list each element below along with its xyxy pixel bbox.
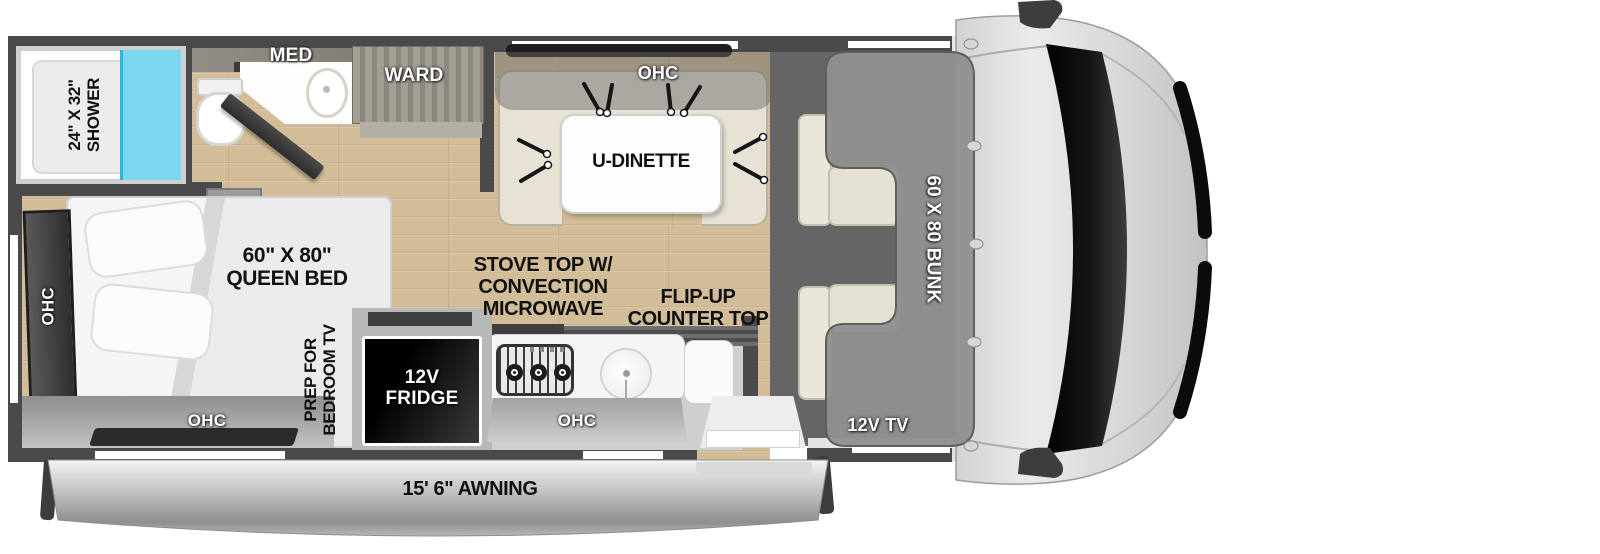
med-label: MED bbox=[262, 46, 320, 67]
bed-pillow bbox=[89, 282, 215, 362]
bath-sink-bowl bbox=[306, 68, 348, 118]
wall-bathroom-bottom bbox=[8, 182, 222, 196]
bed-text: QUEEN BED bbox=[147, 267, 427, 290]
cab-tv-label: 12V TV bbox=[838, 416, 918, 436]
kitchen-faucet-handle bbox=[625, 380, 627, 402]
stove-line3: MICROWAVE bbox=[451, 298, 635, 320]
windshield bbox=[1046, 44, 1127, 454]
awning-label: 15' 6" AWNING bbox=[380, 478, 560, 500]
cab-seat-cushion bbox=[828, 166, 900, 226]
bedroom-ohc-rear-label: OHC bbox=[177, 412, 237, 431]
rivet bbox=[967, 141, 981, 151]
kitchen-faucet bbox=[623, 370, 630, 377]
shower-label: 24" X 32" SHOWER bbox=[66, 50, 110, 180]
bath-faucet bbox=[323, 86, 330, 93]
flip-line1: FLIP-UP bbox=[618, 286, 778, 308]
shower-size-text: 24" X 32" bbox=[66, 50, 85, 180]
window-slit-rear bbox=[10, 235, 18, 403]
stove-label: STOVE TOP W/ CONVECTION MICROWAVE bbox=[451, 254, 635, 320]
side-mirror bbox=[1018, 448, 1063, 478]
queen-bed-label: 60" X 80" QUEEN BED bbox=[147, 244, 427, 290]
stove-knobs bbox=[530, 347, 570, 352]
wardrobe-shelf bbox=[360, 122, 482, 138]
bunk-label: 60 X 80 BUNK bbox=[922, 144, 943, 334]
fridge-line2: FRIDGE bbox=[372, 389, 472, 410]
window-slit-cab-bottom bbox=[852, 447, 950, 453]
cab-seat-back bbox=[798, 286, 832, 400]
cab-seat-cushion bbox=[828, 284, 900, 332]
tv-prep-line1: PREP FOR bbox=[302, 305, 321, 455]
rivet bbox=[967, 337, 981, 347]
window-slit-kitchen bbox=[583, 451, 663, 459]
u-dinette-label: U-DINETTE bbox=[570, 152, 712, 173]
bed-size-text: 60" X 80" bbox=[147, 244, 427, 267]
shower-glass bbox=[120, 50, 181, 180]
stove-burner bbox=[530, 364, 547, 381]
bedroom-rear-mat bbox=[89, 428, 299, 446]
window-slit-cab-top bbox=[848, 41, 950, 48]
ward-label: WARD bbox=[375, 66, 453, 87]
cab-body bbox=[956, 16, 1207, 484]
front-grille bbox=[1180, 88, 1205, 232]
flip-up-counter-extension bbox=[684, 340, 734, 404]
entry-step bbox=[706, 430, 800, 448]
flip-up-counter-label: FLIP-UP COUNTER TOP bbox=[618, 286, 778, 330]
cab-seat-back bbox=[798, 114, 832, 226]
tv-prep-line2: BEDROOM TV bbox=[321, 305, 340, 455]
fridge-line1: 12V bbox=[372, 368, 472, 389]
stove-line1: STOVE TOP W/ bbox=[451, 254, 635, 276]
stove-line2: CONVECTION bbox=[451, 276, 635, 298]
truck-cab-front bbox=[956, 0, 1207, 484]
front-grille bbox=[1180, 268, 1205, 412]
rivet bbox=[964, 39, 978, 49]
shower-text: SHOWER bbox=[85, 50, 104, 180]
dinette-ohc-label: OHC bbox=[628, 64, 688, 84]
fridge-label: 12V FRIDGE bbox=[372, 368, 472, 410]
floorplan-canvas: 24" X 32" SHOWER MED WARD 60" X 80" QUEE… bbox=[0, 0, 1600, 554]
window-slit-bedroom bbox=[95, 451, 285, 459]
bedroom-ohc-left-label: OHC bbox=[40, 256, 59, 356]
stove-burner bbox=[506, 364, 523, 381]
stove-burner bbox=[554, 364, 571, 381]
rivet bbox=[964, 441, 978, 451]
bedroom-tv-prep-label: PREP FOR BEDROOM TV bbox=[302, 305, 346, 455]
kitchen-ohc-label: OHC bbox=[547, 412, 607, 431]
flip-line2: COUNTER TOP bbox=[618, 308, 778, 330]
side-mirror bbox=[1018, 0, 1062, 28]
rivet bbox=[969, 239, 983, 249]
entry-platform bbox=[696, 462, 812, 476]
